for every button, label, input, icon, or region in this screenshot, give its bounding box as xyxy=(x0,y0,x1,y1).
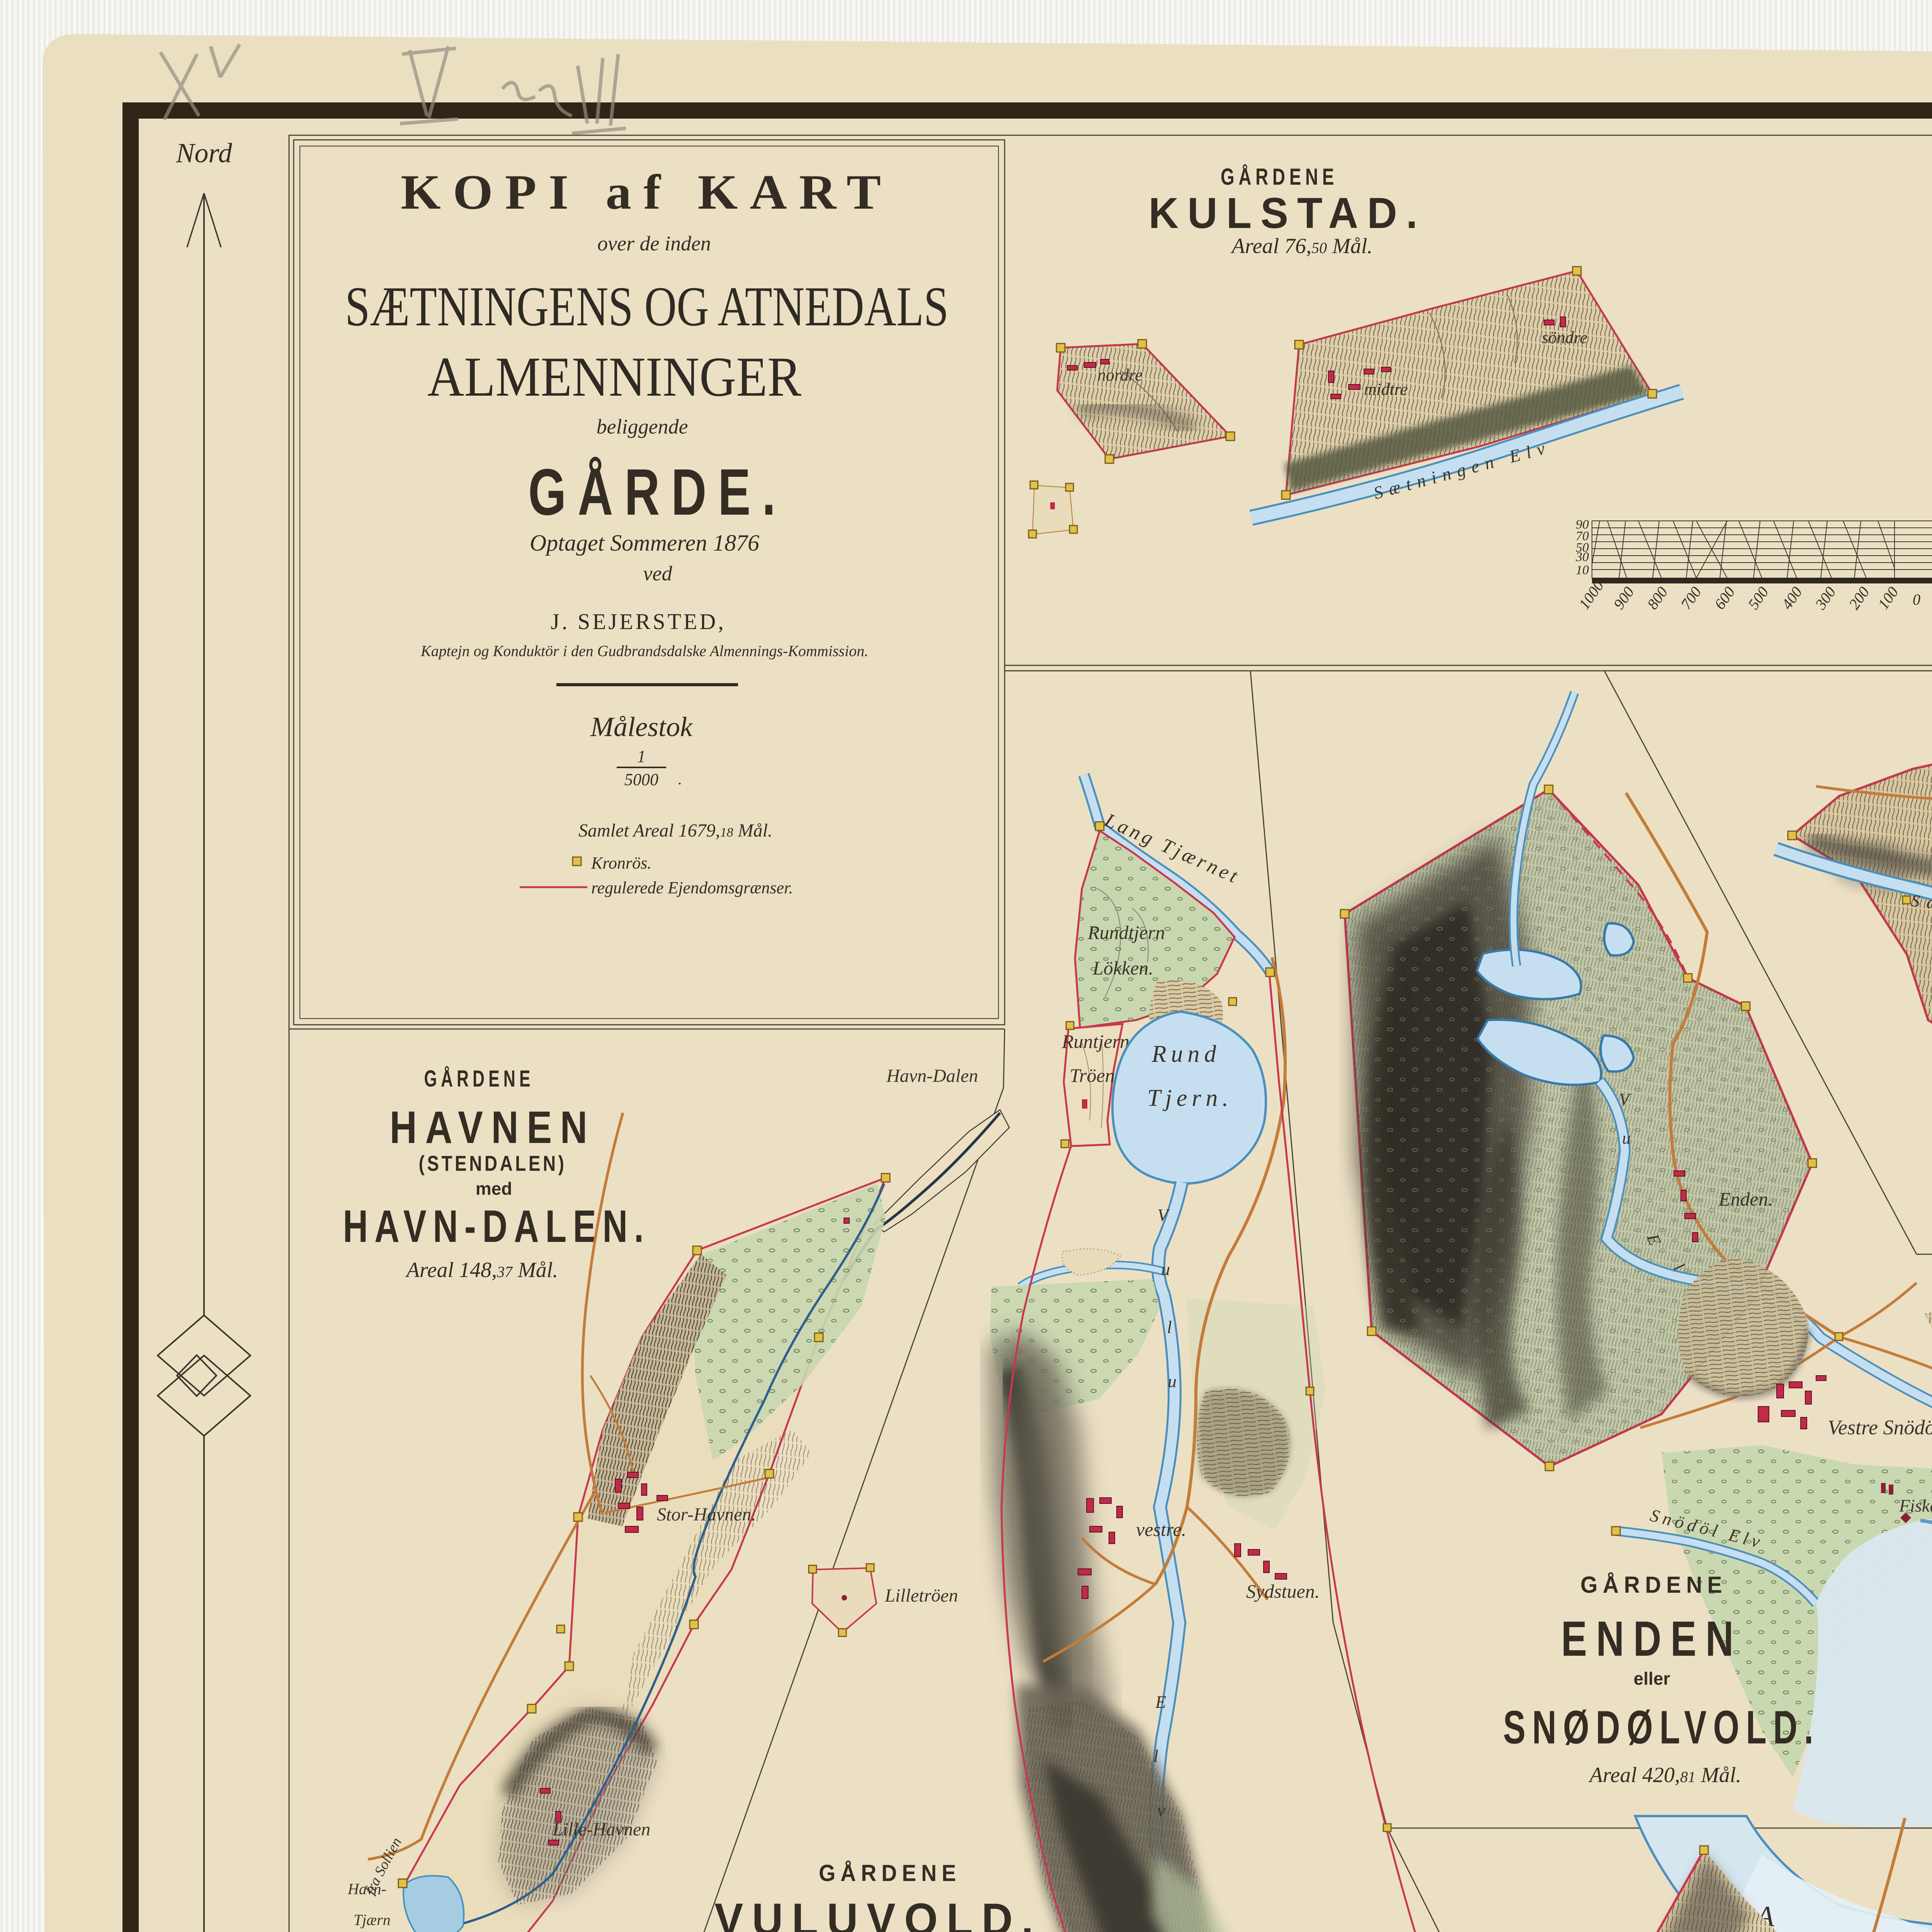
svg-text:Rund: Rund xyxy=(1151,1041,1221,1067)
svg-text:30: 30 xyxy=(1575,550,1589,564)
svg-text:Kaptejn og Konduktör i den: Kaptejn og Konduktör i den Gudbrandsdals… xyxy=(420,642,868,660)
svg-text:Nord: Nord xyxy=(175,138,232,168)
svg-text:u: u xyxy=(1622,1129,1631,1148)
svg-text:Kronrös.: Kronrös. xyxy=(591,854,651,872)
svg-text:GÅRDENE: GÅRDENE xyxy=(1221,164,1338,190)
svg-text:Fiskeboder: Fiskeboder xyxy=(1899,1496,1932,1515)
svg-text:Tjærn: Tjærn xyxy=(354,1911,391,1929)
svg-text:Vestre Snödölvold.: Vestre Snödölvold. xyxy=(1828,1416,1932,1439)
svg-text:Målestok: Målestok xyxy=(590,711,693,742)
svg-text:u: u xyxy=(1161,1259,1170,1279)
svg-text:nordre: nordre xyxy=(1097,366,1143,384)
svg-text:vestre.: vestre. xyxy=(1136,1519,1186,1540)
svg-text:Enden.: Enden. xyxy=(1718,1188,1773,1210)
svg-text:Havn-Dalen: Havn-Dalen xyxy=(886,1066,978,1086)
svg-text:HAVNEN: HAVNEN xyxy=(390,1102,596,1153)
svg-text:regulerede Ejendomsgrænser.: regulerede Ejendomsgrænser. xyxy=(591,878,793,897)
svg-text:Lille-Havnen: Lille-Havnen xyxy=(552,1819,650,1840)
svg-text:SNØDØLVOLD.: SNØDØLVOLD. xyxy=(1503,1701,1820,1753)
svg-text:Rundtjern: Rundtjern xyxy=(1087,922,1165,943)
svg-text:GÅRDE.: GÅRDE. xyxy=(528,456,787,529)
svg-text:Samlet Areal 1679,18 Mål.: Samlet Areal 1679,18 Mål. xyxy=(578,820,772,841)
svg-text:med: med xyxy=(476,1179,512,1199)
svg-text:Tröen.: Tröen. xyxy=(1070,1065,1119,1086)
svg-text:over de inden: over de inden xyxy=(597,232,711,255)
svg-text:GÅRDENE: GÅRDENE xyxy=(819,1860,961,1886)
svg-text:Sydstuen.: Sydstuen. xyxy=(1246,1580,1320,1602)
svg-text:Lökken.: Lökken. xyxy=(1092,957,1153,979)
svg-text:V: V xyxy=(1157,1205,1170,1225)
svg-text:SÆTNINGENS OG ATNEDALS: SÆTNINGENS OG ATNEDALS xyxy=(345,275,949,338)
svg-text:1: 1 xyxy=(637,747,646,766)
svg-text:.: . xyxy=(678,770,682,788)
svg-text:E: E xyxy=(1155,1692,1166,1712)
svg-text:Havn-: Havn- xyxy=(347,1880,386,1898)
svg-text:Lilletröen: Lilletröen xyxy=(884,1585,958,1606)
svg-text:KULSTAD.: KULSTAD. xyxy=(1149,189,1427,237)
svg-text:10: 10 xyxy=(1576,563,1589,577)
svg-text:GÅRDENE: GÅRDENE xyxy=(424,1066,534,1092)
svg-text:Areal 148,37 Mål.: Areal 148,37 Mål. xyxy=(405,1258,558,1282)
svg-text:Stor-Havnen.: Stor-Havnen. xyxy=(657,1504,756,1525)
svg-text:midtre: midtre xyxy=(1364,380,1408,399)
svg-text:5000: 5000 xyxy=(624,770,658,789)
svg-text:ENDEN: ENDEN xyxy=(1561,1611,1743,1667)
svg-text:VULUVOLD.: VULUVOLD. xyxy=(714,1894,1042,1932)
svg-text:v: v xyxy=(1157,1800,1165,1820)
svg-text:l: l xyxy=(1153,1746,1158,1766)
svg-text:J. SEJERSTED,: J. SEJERSTED, xyxy=(551,609,726,634)
svg-text:ALMENNINGER: ALMENNINGER xyxy=(427,345,802,408)
svg-text:GÅRDENE: GÅRDENE xyxy=(1580,1572,1727,1598)
svg-text:eller: eller xyxy=(1634,1668,1670,1689)
svg-text:Optaget Sommeren 1876: Optaget Sommeren 1876 xyxy=(530,530,759,556)
svg-text:(STENDALEN): (STENDALEN) xyxy=(419,1151,567,1175)
svg-text:beliggende: beliggende xyxy=(597,415,688,438)
svg-text:Areal 420,81 Mål.: Areal 420,81 Mål. xyxy=(1588,1763,1742,1787)
svg-text:0: 0 xyxy=(1913,591,1920,608)
svg-text:KOPI af KART: KOPI af KART xyxy=(401,165,893,219)
svg-text:HAVN-DALEN.: HAVN-DALEN. xyxy=(343,1201,650,1252)
svg-text:Areal 76,50 Mål.: Areal 76,50 Mål. xyxy=(1230,234,1373,258)
svg-text:Tjern.: Tjern. xyxy=(1147,1085,1233,1111)
svg-text:söndre: söndre xyxy=(1542,328,1587,347)
svg-text:l: l xyxy=(1167,1317,1172,1337)
svg-text:u: u xyxy=(1168,1371,1177,1391)
svg-text:ved: ved xyxy=(643,562,673,585)
